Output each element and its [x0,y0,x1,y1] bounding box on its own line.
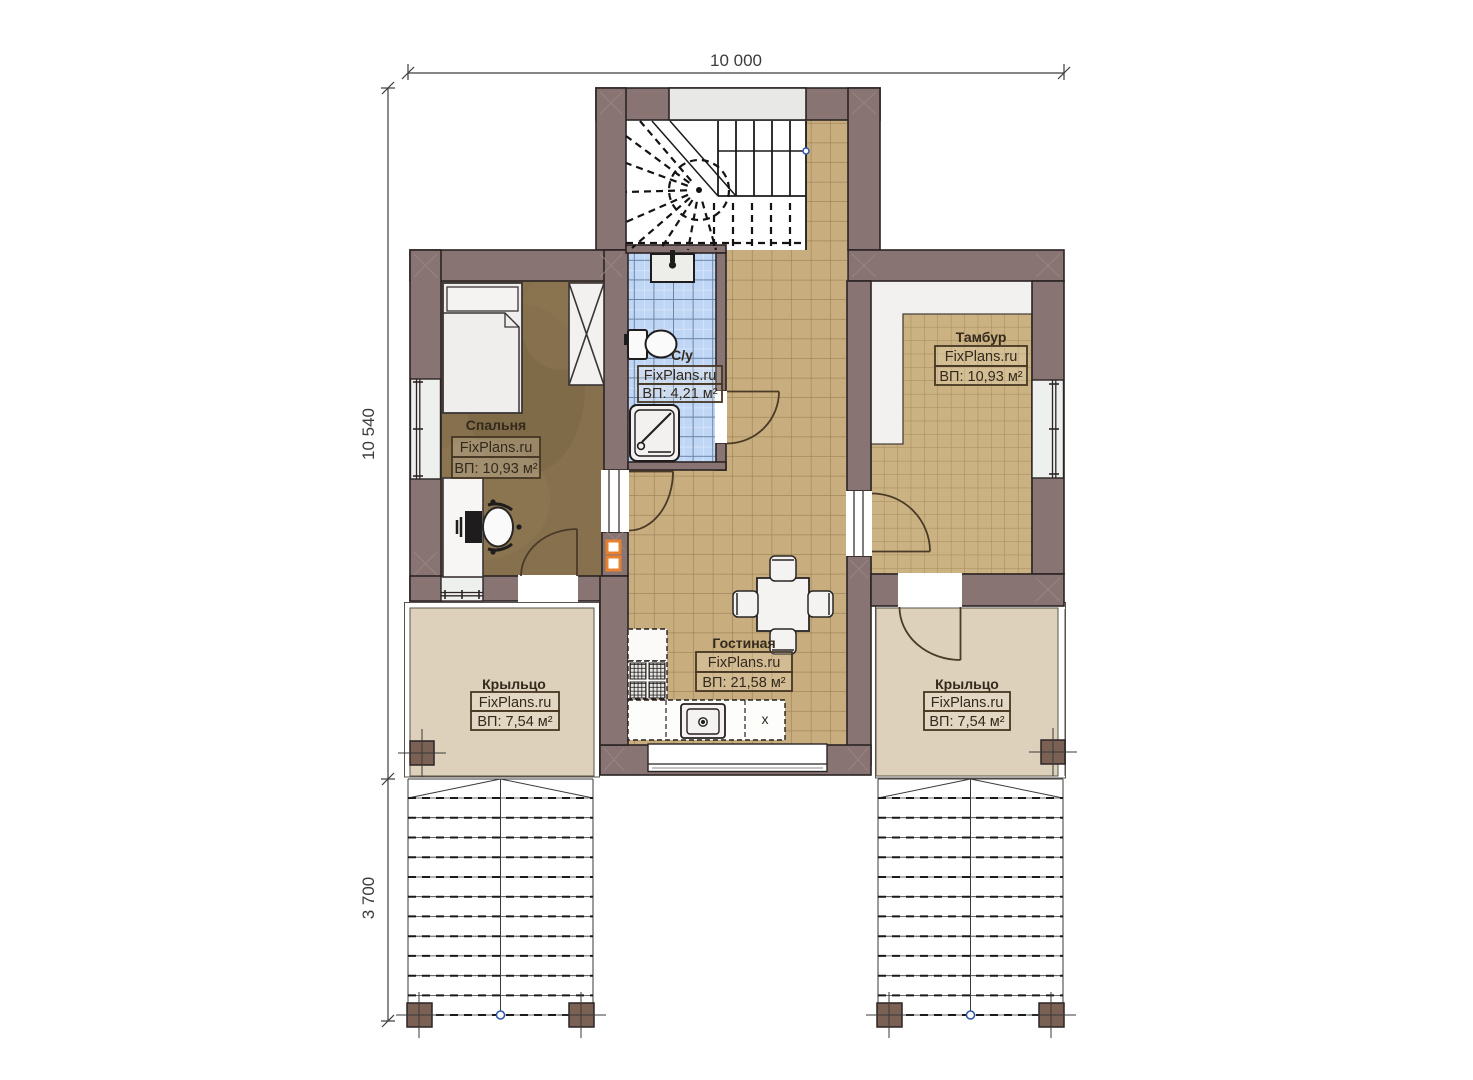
svg-text:С/у: С/у [671,347,693,363]
svg-text:ВП: 7,54 м²: ВП: 7,54 м² [477,714,552,730]
svg-text:ВП: 10,93 м²: ВП: 10,93 м² [939,369,1022,385]
svg-text:ВП: 7,54 м²: ВП: 7,54 м² [929,714,1004,730]
svg-text:ВП: 10,93 м²: ВП: 10,93 м² [454,461,537,477]
svg-text:Крыльцо: Крыльцо [482,676,546,692]
svg-text:Тамбур: Тамбур [956,329,1007,345]
svg-text:3 700: 3 700 [359,877,378,920]
svg-text:FixPlans.ru: FixPlans.ru [945,349,1018,365]
svg-text:10 540: 10 540 [359,408,378,460]
svg-text:Гостиная: Гостиная [712,635,775,651]
svg-text:ВП: 21,58 м²: ВП: 21,58 м² [702,675,785,691]
svg-text:Крыльцо: Крыльцо [935,676,999,692]
svg-text:x: x [762,711,769,727]
svg-text:Спальня: Спальня [466,417,526,433]
svg-text:FixPlans.ru: FixPlans.ru [708,655,781,671]
svg-text:FixPlans.ru: FixPlans.ru [460,440,533,456]
svg-text:FixPlans.ru: FixPlans.ru [479,695,552,711]
svg-text:10 000: 10 000 [710,51,762,70]
svg-text:FixPlans.ru: FixPlans.ru [644,368,717,384]
svg-text:FixPlans.ru: FixPlans.ru [931,695,1004,711]
svg-text:ВП: 4,21 м²: ВП: 4,21 м² [642,386,717,402]
